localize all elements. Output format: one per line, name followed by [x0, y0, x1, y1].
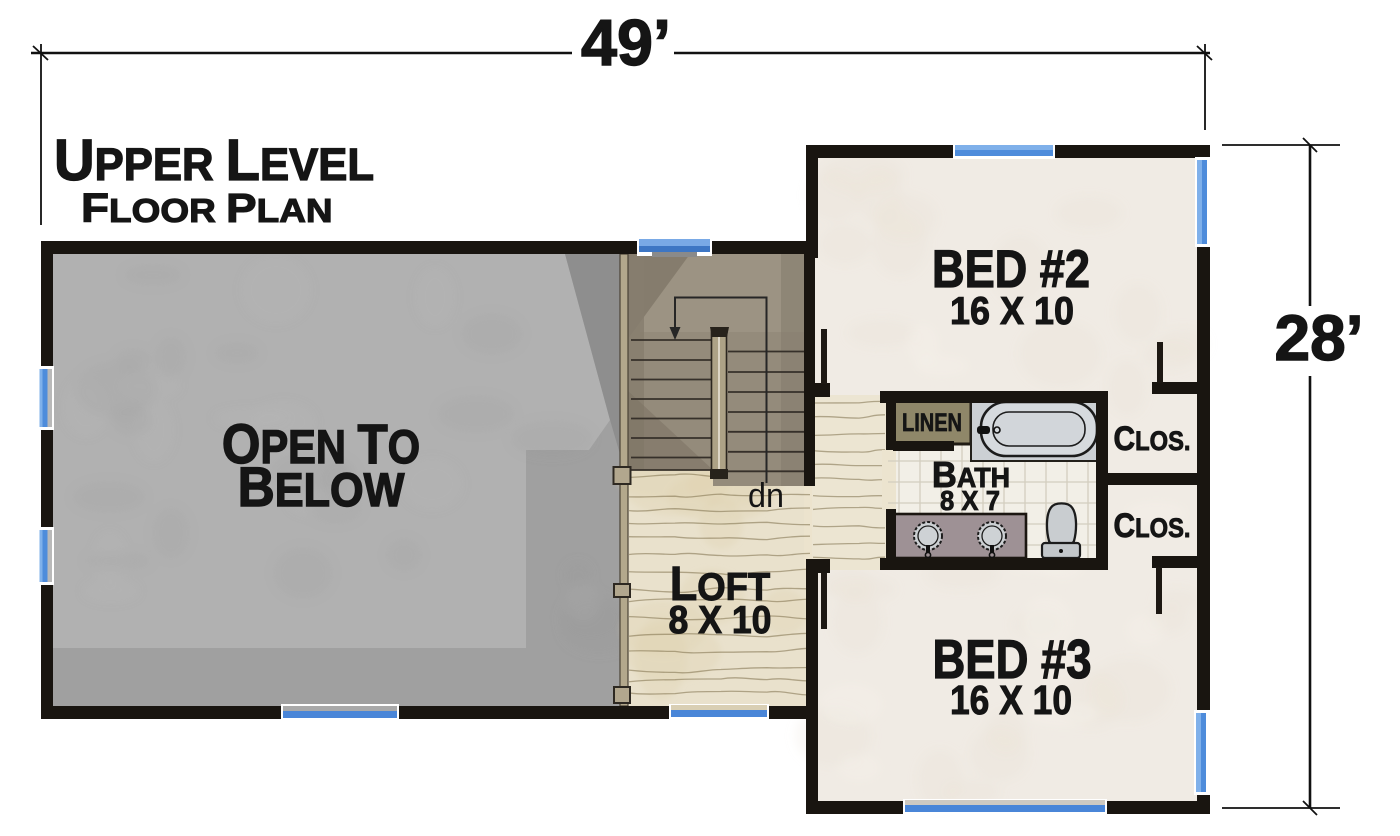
svg-text:BELOW: BELOW: [238, 456, 405, 518]
svg-text:16 X 10: 16 X 10: [950, 677, 1072, 723]
svg-text:28’: 28’: [1275, 302, 1364, 374]
svg-text:8 X 10: 8 X 10: [669, 599, 772, 642]
svg-text:LINEN: LINEN: [902, 409, 962, 437]
svg-text:FLOOR PLAN: FLOOR PLAN: [81, 186, 333, 231]
svg-text:49’: 49’: [581, 6, 671, 79]
svg-text:8 X 7: 8 X 7: [940, 485, 1000, 516]
svg-text:dn: dn: [748, 477, 784, 515]
svg-text:16 X 10: 16 X 10: [950, 290, 1074, 333]
